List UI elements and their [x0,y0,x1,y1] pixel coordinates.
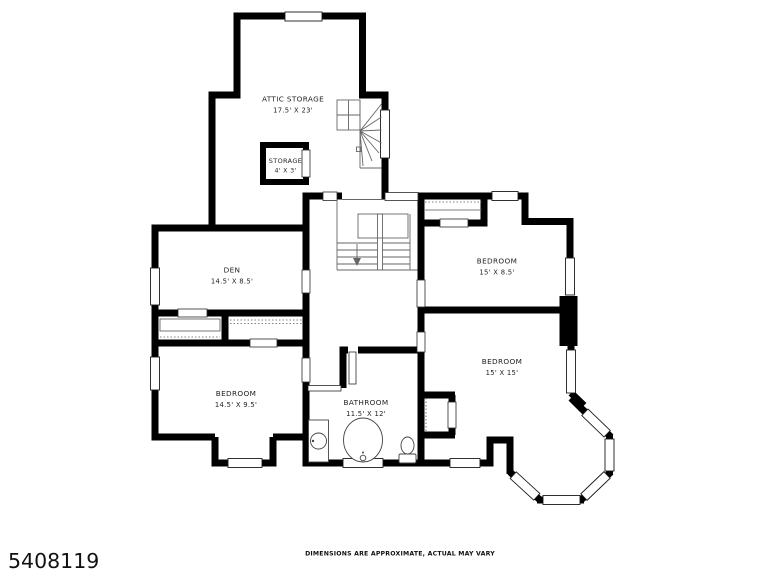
window-bay-ne [582,409,611,437]
door-bedroom-lower-left [302,358,310,382]
window-corridor-bottom [450,459,480,468]
door-linen-closet [448,402,456,428]
stair-railing [378,214,383,270]
storage-dims: 4' X 3' [275,168,297,175]
window-bay-east [605,439,614,471]
window-attic-top [285,12,322,21]
door-bedroom-right [417,332,425,352]
stair-down-arrow [353,258,361,266]
window-bedroom2-top [492,192,518,201]
attic-storage-dims: 17.5' X 23' [273,107,313,115]
window-bay-south [543,496,580,505]
closet1-shelf [160,319,220,331]
door-leaf-bathroom [349,352,356,384]
window-attic-right [381,110,390,158]
main-staircase [337,200,418,271]
listing-id: 5408119 [8,549,99,573]
bedroom-lower-left-dims: 14.5' X 9.5' [215,401,257,409]
tub-faucet [362,452,364,454]
floor-plan-canvas: ATTIC STORAGE 17.5' X 23' STORAGE 4' X 3… [0,0,768,576]
dimensions-disclaimer: DIMENSIONS ARE APPROXIMATE, ACTUAL MAY V… [305,551,495,558]
opening-den-closet [178,309,207,317]
den-dims: 14.5' X 8.5' [211,278,253,286]
door-storage-closet [302,150,310,177]
window-bedroom-left [151,357,160,390]
bathroom-fixtures [309,418,417,463]
window-bay-sw [510,472,540,500]
window-bay-se [581,472,610,501]
bathroom-dims: 11.5' X 12' [346,410,386,418]
window-den-left [151,268,160,305]
door-closet2 [250,339,277,347]
floor-plan-page: ATTIC STORAGE 17.5' X 23' STORAGE 4' X 3… [0,0,768,576]
attic-storage-label: ATTIC STORAGE [262,95,324,104]
door-bedroom2-closet [440,219,468,227]
sink-faucet [312,440,314,442]
bedroom-right-label: BEDROOM [482,357,523,366]
window-bedroom3-right [567,350,576,393]
room-labels: ATTIC STORAGE 17.5' X 23' STORAGE 4' X 3… [211,95,522,419]
door-den [302,270,310,293]
tub-drain [360,455,366,461]
bedroom-right-dims: 15' X 15' [486,369,519,377]
opening-stair-landing [385,193,418,201]
attic-winder-stairs [337,100,385,200]
bedroom-upper-right-label: BEDROOM [477,257,518,266]
bathroom-label: BATHROOM [343,398,388,407]
stair-landing [358,214,408,238]
storage-label: STORAGE [269,157,302,165]
bedroom-upper-right-dims: 15' X 8.5' [479,269,514,277]
chimney [560,296,578,346]
opening-bathroom [308,386,341,392]
door-bedroom-upper-right [417,280,425,307]
bedroom-lower-left-label: BEDROOM [216,389,257,398]
den-label: DEN [224,266,241,275]
toilet-tank [399,454,416,463]
door-attic [323,192,337,201]
toilet-bowl [401,437,414,454]
window-bedroom-bottom [228,459,262,468]
window-bedroom2-right [566,258,575,295]
